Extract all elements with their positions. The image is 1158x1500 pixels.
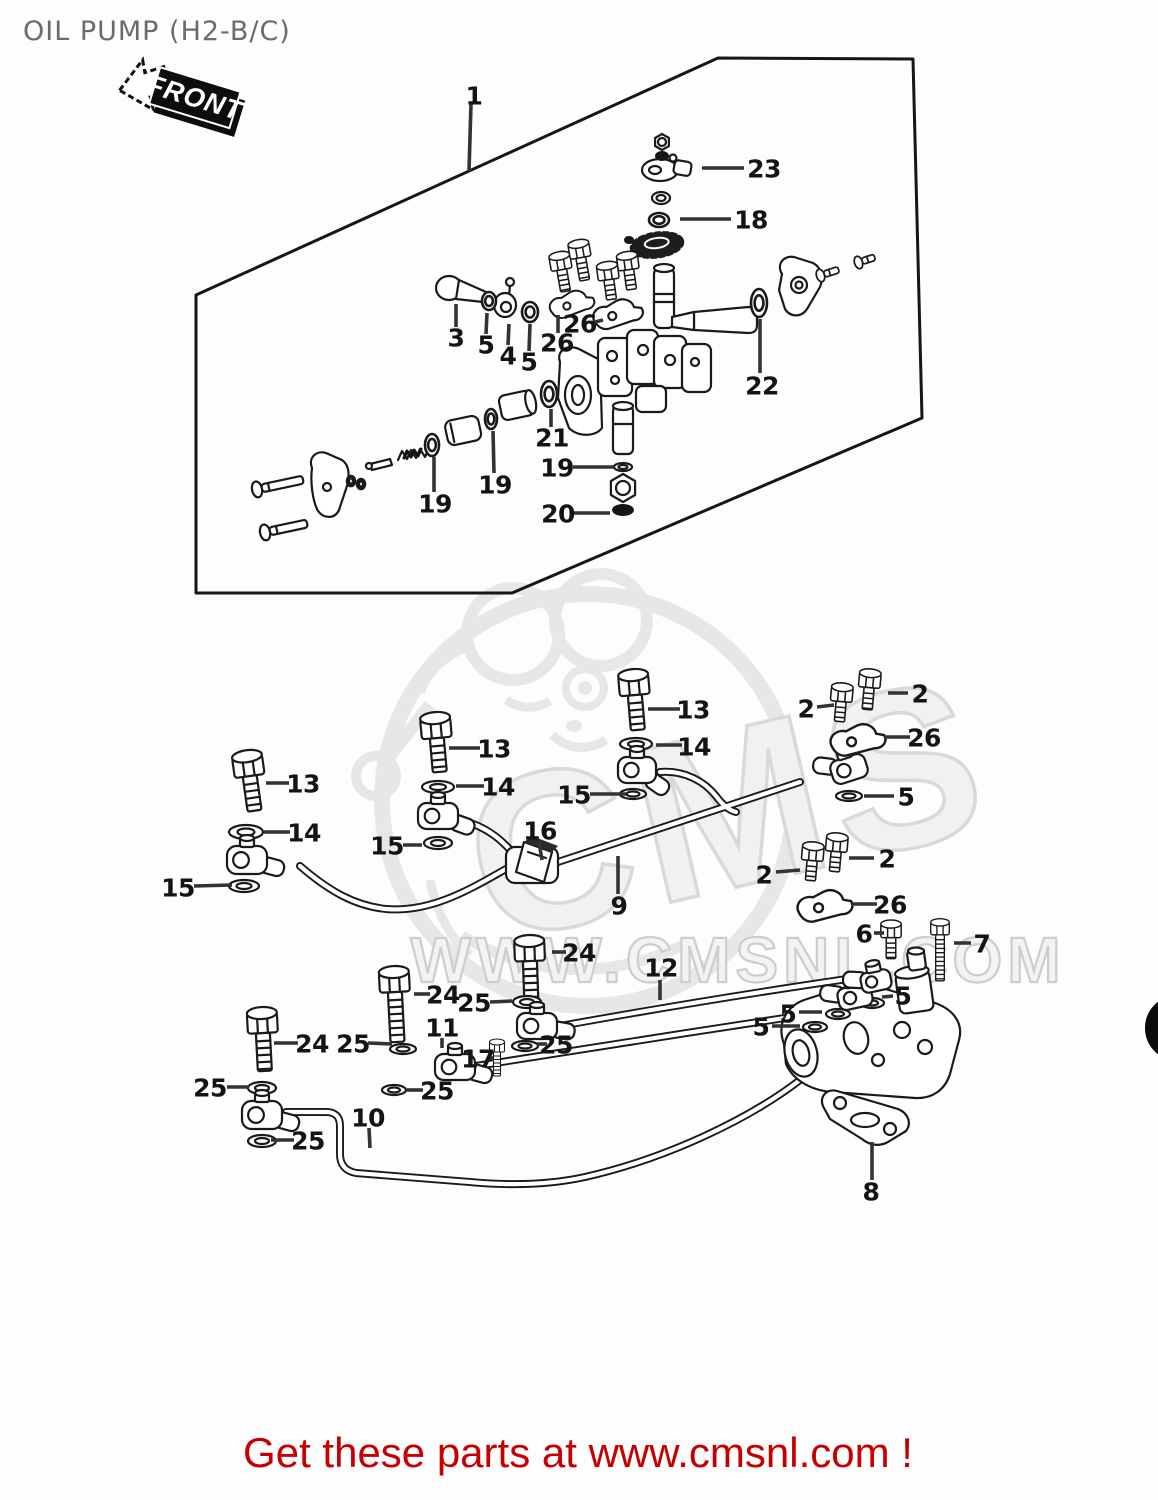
part-callout-14: 14: [481, 773, 515, 802]
part-callout-23: 23: [747, 155, 781, 184]
part-callout-5: 5: [478, 331, 495, 360]
part-callout-14: 14: [287, 819, 321, 848]
part-callout-19: 19: [540, 454, 574, 483]
part-callout-2: 2: [912, 680, 929, 709]
banjo-fitting-part: [227, 835, 286, 878]
bolt-part-3: [436, 276, 486, 302]
clamp-part: [591, 296, 645, 331]
washer-part: [229, 880, 259, 892]
part-callout-9: 9: [611, 892, 628, 921]
bolt-part: [247, 1006, 280, 1071]
oring-part: [751, 289, 767, 317]
part-callout-24: 24: [426, 981, 460, 1010]
part-callout-2: 2: [879, 845, 896, 874]
washer-part: [803, 1022, 827, 1032]
dark-washer-part: [624, 236, 634, 244]
washer-part: [382, 1085, 406, 1095]
pin-part-4: [494, 278, 516, 317]
oring-part: [482, 292, 496, 310]
oring-part: [522, 302, 538, 322]
screw-part: [853, 251, 877, 270]
mount-bracket: [779, 257, 822, 316]
part-callout-25: 25: [539, 1031, 573, 1060]
outlet-pipe-22: [672, 307, 757, 333]
parts-diagram-page: CMS WWW.CMSNL.COM OIL PUMP (H2-B/C) FRON…: [0, 0, 1158, 1500]
part-callout-5: 5: [898, 783, 915, 812]
part-callout-5: 5: [780, 1000, 797, 1029]
oring-part: [541, 381, 557, 407]
bolt-part: [616, 250, 642, 291]
page-title: OIL PUMP (H2-B/C): [23, 16, 291, 47]
part-callout-24: 24: [562, 939, 596, 968]
part-callout-15: 15: [161, 874, 195, 903]
part-callout-18: 18: [734, 206, 768, 235]
part-callout-5: 5: [753, 1013, 770, 1042]
check-valve-lower: [613, 402, 633, 454]
edge-ring-icon: [1152, 1002, 1158, 1054]
leader-line: [882, 996, 893, 997]
part-callout-26: 26: [907, 724, 941, 753]
part-callout-2: 2: [756, 861, 773, 890]
oring-part: [357, 479, 365, 489]
part-callout-11: 11: [425, 1014, 459, 1043]
gasket-8: [822, 1090, 909, 1144]
leader-line: [776, 870, 800, 872]
part-callout-26: 26: [540, 329, 574, 358]
part-callout-12: 12: [644, 954, 678, 983]
dark-washer-part: [612, 504, 634, 516]
part-callout-17: 17: [461, 1045, 495, 1074]
part-callout-8: 8: [863, 1178, 880, 1207]
part-callout-22: 22: [745, 372, 779, 401]
part-callout-19: 19: [478, 471, 512, 500]
part-callout-25: 25: [457, 989, 491, 1018]
pump-body: [598, 330, 711, 412]
plunger-cylinder: [444, 415, 482, 447]
part-callout-20: 20: [541, 500, 575, 529]
oring-part: [347, 476, 355, 486]
part-callout-21: 21: [535, 424, 569, 453]
hex-nut-part: [611, 474, 635, 502]
part-callout-3: 3: [448, 324, 465, 353]
part-callout-10: 10: [351, 1104, 385, 1133]
dark-washer-part: [655, 151, 669, 161]
washer-part: [652, 192, 670, 204]
hex-nut-part: [655, 134, 669, 150]
part-callout-26: 26: [873, 891, 907, 920]
leader-line: [493, 431, 494, 473]
plunger-roller: [498, 389, 538, 421]
bolt-part: [231, 748, 269, 813]
leader-line: [490, 1001, 512, 1002]
part-callout-2: 2: [798, 695, 815, 724]
washer-part: [836, 791, 862, 801]
leader-line: [817, 705, 834, 707]
part-callout-5: 5: [895, 982, 912, 1011]
oring-part: [425, 434, 439, 456]
part-callout-7: 7: [974, 930, 991, 959]
part-callout-15: 15: [557, 781, 591, 810]
part-callout-1: 1: [466, 82, 483, 111]
washer-part: [424, 837, 452, 849]
part-callout-13: 13: [286, 770, 320, 799]
part-callout-13: 13: [676, 696, 710, 725]
screw-part: [250, 472, 304, 498]
bolt-part: [379, 965, 413, 1042]
edge-logo-ring: [1152, 1002, 1158, 1054]
pin: [370, 459, 392, 470]
oring-part: [485, 409, 497, 429]
washer-part: [512, 1041, 538, 1051]
part-callout-14: 14: [677, 733, 711, 762]
part-callout-19: 19: [418, 490, 452, 519]
part-callout-6: 6: [856, 920, 873, 949]
part-callout-25: 25: [336, 1030, 370, 1059]
front-badge: FRONT: [115, 56, 249, 137]
leader-line: [194, 885, 232, 886]
leader-line: [469, 104, 471, 171]
part-callout-4: 4: [500, 342, 517, 371]
part-callout-25: 25: [291, 1127, 325, 1156]
part-callout-15: 15: [370, 832, 404, 861]
footer-promo-text: Get these parts at www.cmsnl.com !: [243, 1429, 913, 1476]
washer-part: [390, 1044, 416, 1054]
part-callout-24: 24: [295, 1030, 329, 1059]
watermark-url-text: WWW.CMSNL.COM: [410, 924, 1065, 996]
leader-line: [368, 1043, 392, 1044]
part-callout-25: 25: [193, 1074, 227, 1103]
part-callout-16: 16: [523, 817, 557, 846]
oring-part: [649, 213, 669, 227]
washer-part: [614, 463, 632, 471]
part-callout-5: 5: [521, 348, 538, 377]
part-callout-13: 13: [477, 735, 511, 764]
part-callout-25: 25: [420, 1077, 454, 1106]
screw-part: [258, 516, 308, 542]
pump-gear: [631, 231, 684, 260]
